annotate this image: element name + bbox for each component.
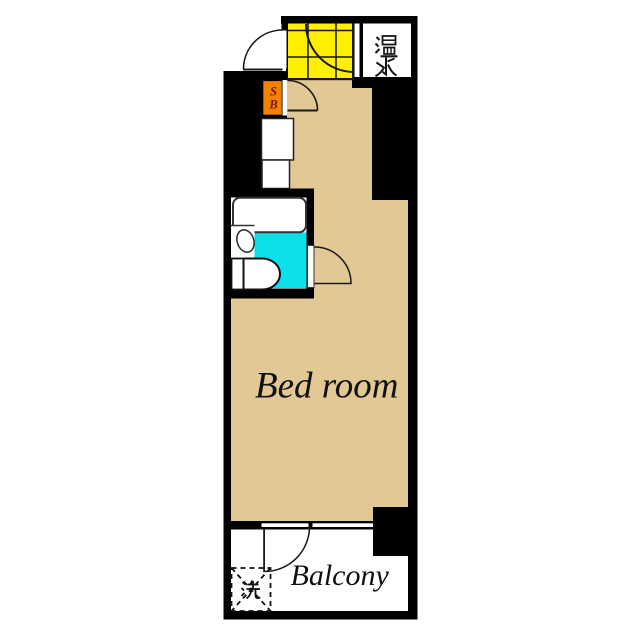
svg-text:Balcony: Balcony — [291, 559, 390, 592]
svg-text:S: S — [270, 85, 277, 99]
svg-text:B: B — [268, 98, 277, 112]
svg-text:Bed room: Bed room — [255, 366, 399, 407]
